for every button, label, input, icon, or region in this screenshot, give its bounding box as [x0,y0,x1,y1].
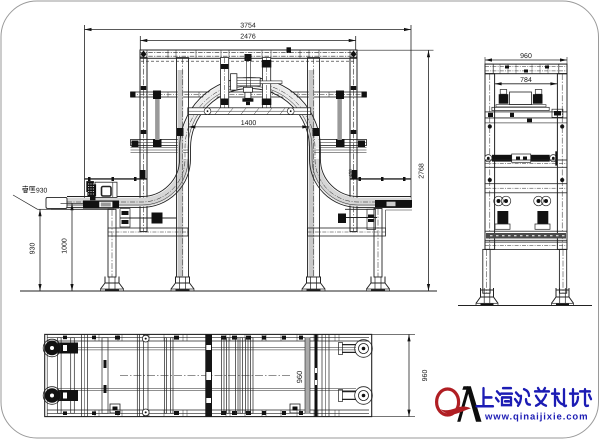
svg-text:1400: 1400 [241,120,257,127]
svg-text:930: 930 [30,243,37,255]
svg-text:960: 960 [520,53,532,60]
svg-text:458: 458 [348,169,353,177]
svg-text:1000: 1000 [62,238,69,254]
svg-text:2768: 2768 [419,163,426,179]
svg-text:2476: 2476 [240,34,256,41]
svg-text:784: 784 [520,77,532,84]
svg-text:960: 960 [422,370,429,382]
svg-text:www.qinaijixie.com: www.qinaijixie.com [484,412,588,423]
svg-text:3754: 3754 [240,23,256,30]
svg-text:960: 960 [295,371,304,384]
svg-text:930: 930 [36,188,48,195]
